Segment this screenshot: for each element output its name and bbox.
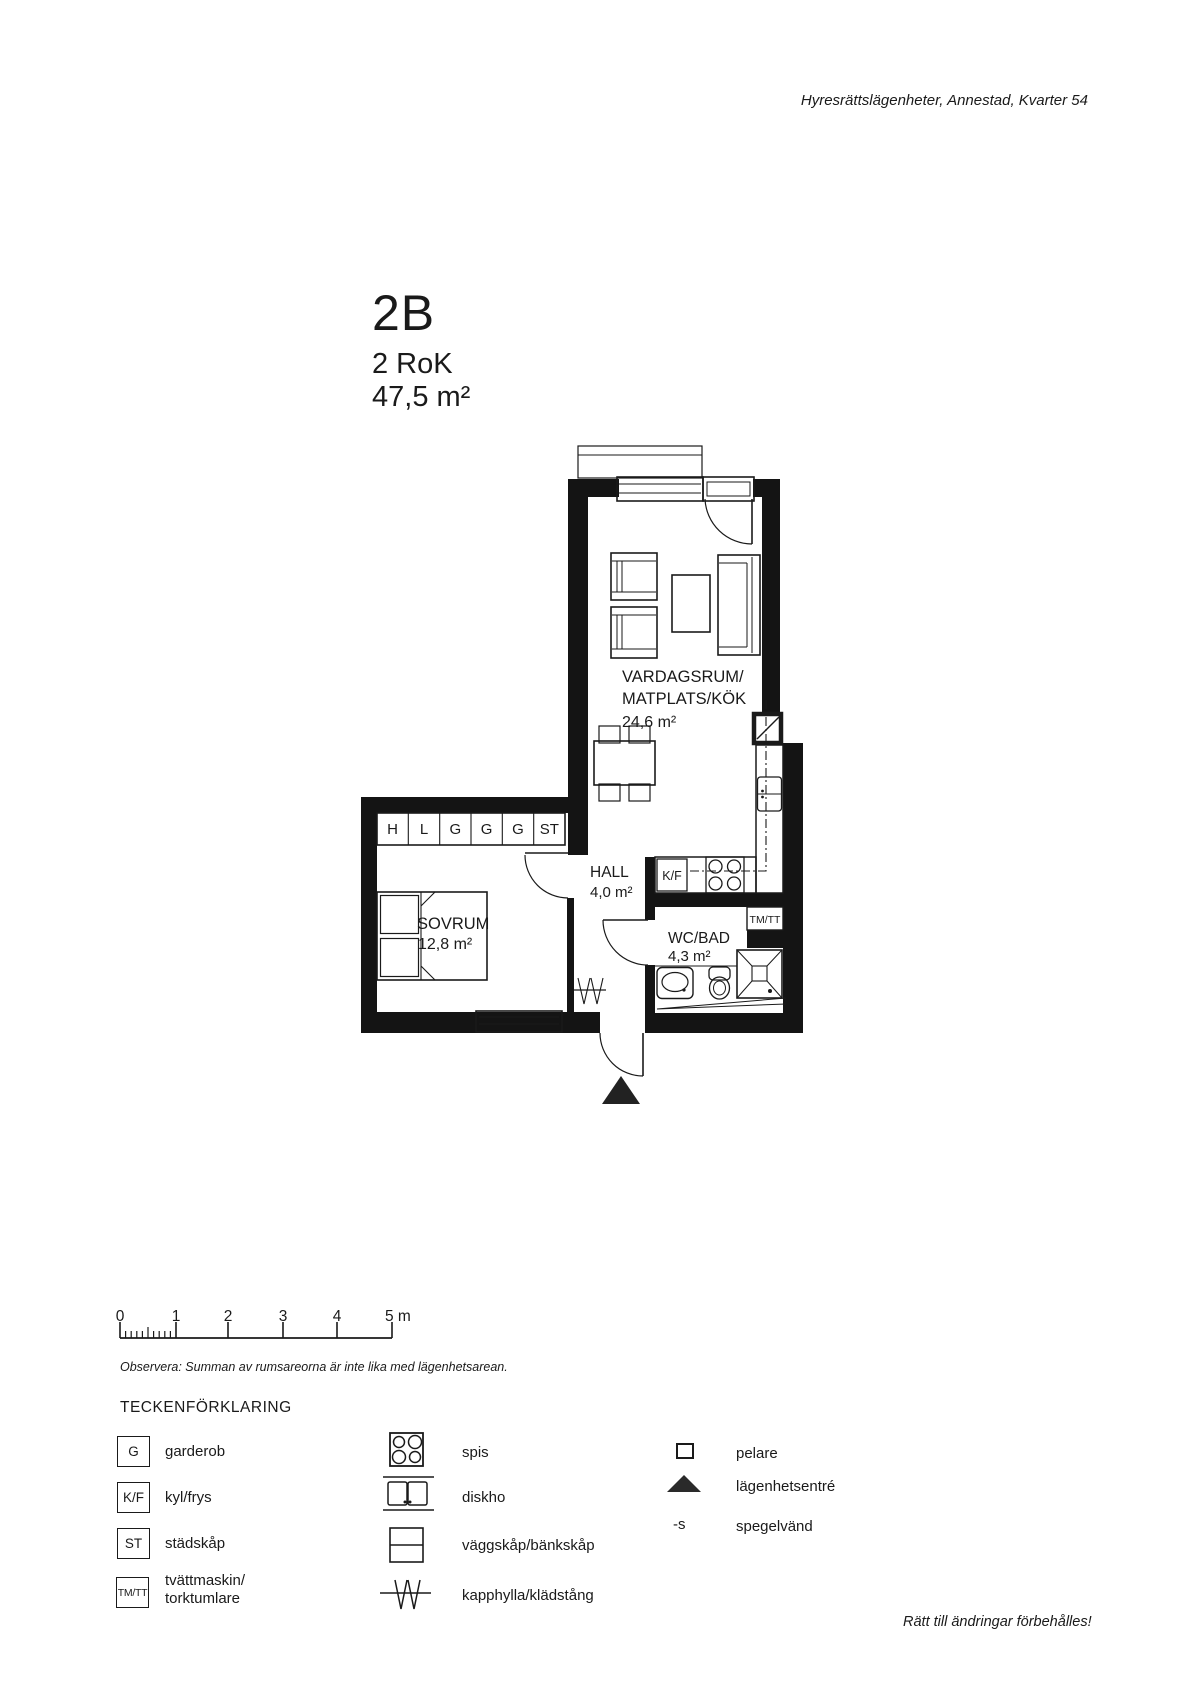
footer-disclaimer: Rätt till ändringar förbehålles! <box>903 1614 1092 1630</box>
legend-label: städskåp <box>165 1535 225 1553</box>
scale-tick-label: 4 <box>333 1308 342 1325</box>
bedroom-area: 12,8 m² <box>418 936 473 953</box>
legend-symbol-tmtt: TM/TT <box>116 1577 149 1608</box>
living-room-label: VARDAGSRUM/ <box>622 668 744 686</box>
stove-icon <box>388 1430 428 1470</box>
bedroom-label: SOVRUM <box>417 915 489 933</box>
closet-label: H <box>387 821 398 838</box>
mirrored-symbol: -s <box>673 1516 686 1534</box>
living-room-label2: MATPLATS/KÖK <box>622 690 746 708</box>
entrance-icon <box>666 1474 702 1494</box>
column-icon <box>676 1443 694 1459</box>
shaft-icon <box>754 714 781 743</box>
dining-table-icon <box>594 726 655 801</box>
scale-bar: 0 1 2 3 4 5 m <box>95 1292 435 1348</box>
cabinet-icon <box>388 1526 428 1566</box>
sink-icon <box>758 777 782 811</box>
entry-door-arc-icon <box>600 1033 643 1076</box>
toilet-icon <box>709 967 730 999</box>
balcony-door-arc-icon <box>705 499 752 544</box>
bedroom-door-arc-icon <box>525 853 568 898</box>
closet-label: L <box>420 821 428 838</box>
scale-end-label: 5 m <box>385 1308 411 1325</box>
legend-symbol-kylfrys: K/F <box>117 1482 150 1513</box>
closet-label: G <box>449 821 461 838</box>
closet-label: G <box>481 821 493 838</box>
legend-label: garderob <box>165 1443 225 1461</box>
hall-label: HALL <box>590 864 629 881</box>
closet-label: ST <box>540 821 559 838</box>
legend-label: kapphylla/klädstång <box>462 1587 594 1605</box>
legend-label-line: tvättmaskin/ <box>165 1572 245 1590</box>
legend-label: lägenhetsentré <box>736 1478 835 1496</box>
legend-label: kyl/frys <box>165 1489 212 1507</box>
unit-title-block: 2B 2 RoK 47,5 m² <box>372 288 470 414</box>
bathroom-area: 4,3 m² <box>668 948 711 965</box>
scale-tick-label: 1 <box>172 1308 181 1325</box>
floorplan-page: Hyresrättslägenheter, Annestad, Kvarter … <box>0 0 1200 1699</box>
washbasin-icon <box>657 968 693 999</box>
washer-dryer-icon: TM/TT <box>747 907 783 930</box>
legend-label-line: torktumlare <box>165 1590 245 1608</box>
legend-label: spis <box>462 1444 489 1462</box>
stove-icon <box>706 857 744 893</box>
floorplan-drawing: H L G G G ST <box>330 430 830 1130</box>
coffee-table-icon <box>672 575 710 632</box>
shower-icon <box>737 950 782 998</box>
legend-label: pelare <box>736 1445 778 1463</box>
scale-tick-label: 0 <box>116 1308 125 1325</box>
washer-label: TM/TT <box>750 914 781 926</box>
armchair-icon <box>611 553 657 600</box>
wardrobe-row: H L G G G ST <box>377 813 565 845</box>
entrance-triangle-icon <box>602 1076 640 1104</box>
document-header: Hyresrättslägenheter, Annestad, Kvarter … <box>801 92 1088 109</box>
balcony-railing <box>578 446 702 478</box>
legend-label: spegelvänd <box>736 1518 813 1536</box>
bathroom-door-arc-icon <box>603 920 648 965</box>
legend-label: tvättmaskin/ torktumlare <box>165 1572 245 1608</box>
fridge-label: K/F <box>662 869 682 883</box>
living-room-area: 24,6 m² <box>622 714 677 731</box>
legend-symbol-garderob: G <box>117 1436 150 1467</box>
legend-label: diskho <box>462 1489 505 1507</box>
unit-code: 2B <box>372 288 470 338</box>
floor-slope-line <box>657 998 786 1009</box>
legend-symbol-stadskap: ST <box>117 1528 150 1559</box>
closet-label: G <box>512 821 524 838</box>
coatrack-icon <box>574 978 606 1004</box>
sink-icon <box>380 1474 438 1516</box>
scale-tick-label: 2 <box>224 1308 233 1325</box>
unit-rooms: 2 RoK <box>372 348 470 381</box>
legend-heading: TECKENFÖRKLARING <box>120 1399 292 1417</box>
scale-tick-label: 3 <box>279 1308 288 1325</box>
legend-label: väggskåp/bänkskåp <box>462 1537 595 1555</box>
unit-area: 47,5 m² <box>372 381 470 414</box>
area-note: Observera: Summan av rumsareorna är inte… <box>120 1360 508 1374</box>
sofa-icon <box>718 555 760 655</box>
fridge-icon: K/F <box>657 859 687 891</box>
armchair-icon <box>611 607 657 658</box>
hall-area: 4,0 m² <box>590 884 633 901</box>
coatrack-icon <box>380 1576 434 1614</box>
bathroom-label: WC/BAD <box>668 930 730 947</box>
window-icon <box>617 477 754 501</box>
